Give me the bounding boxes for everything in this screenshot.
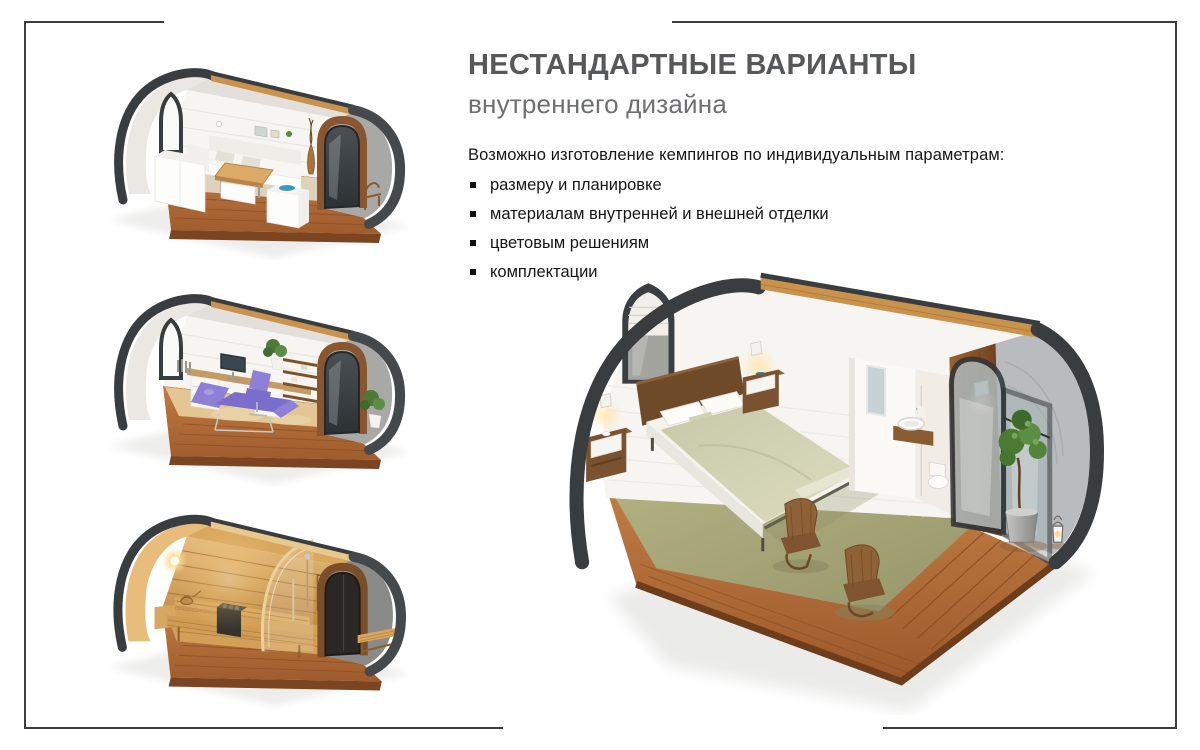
frame-bottom-left-segment bbox=[24, 727, 503, 729]
square-bullet-icon bbox=[470, 269, 476, 275]
cube-table bbox=[267, 190, 299, 228]
pod-office-image bbox=[58, 258, 420, 486]
shelf-plant bbox=[286, 131, 292, 137]
wall-picture bbox=[255, 126, 267, 137]
square-bullet-icon bbox=[470, 182, 476, 188]
pod-bedroom-image bbox=[548, 265, 1120, 715]
page-subtitle: внутреннего дизайна bbox=[468, 89, 1048, 120]
bullet-item: размеру и планировке bbox=[470, 174, 1048, 197]
intro-text: Возможно изготовление кемпингов по индив… bbox=[468, 146, 1048, 165]
bathroom bbox=[849, 358, 951, 515]
mirror bbox=[867, 366, 885, 416]
bullet-item: цветовым решениям bbox=[470, 232, 1048, 255]
pod-lounge-image bbox=[58, 32, 420, 260]
frame-top-left-segment bbox=[24, 21, 164, 23]
shower-head bbox=[304, 554, 310, 560]
towel bbox=[917, 406, 925, 418]
slide-canvas: НЕСТАНДАРТНЫЕ ВАРИАНТЫ внутреннего дизай… bbox=[0, 0, 1200, 750]
dark-doorway bbox=[325, 573, 359, 655]
blue-bowl bbox=[279, 185, 295, 191]
bullet-item: материалам внутренней и внешней отделки bbox=[470, 203, 1048, 226]
frame-top-right-segment bbox=[672, 21, 1177, 23]
square-bullet-icon bbox=[470, 240, 476, 246]
page-title: НЕСТАНДАРТНЫЕ ВАРИАНТЫ bbox=[468, 50, 1048, 80]
wall-sconce bbox=[217, 122, 222, 127]
frame-right-edge bbox=[1175, 21, 1177, 729]
round-lamp bbox=[170, 556, 179, 565]
pod-sauna-image bbox=[58, 478, 420, 710]
square-bullet-icon bbox=[470, 211, 476, 217]
wall-sconce bbox=[751, 341, 762, 355]
computer-monitor bbox=[221, 354, 245, 372]
frame-left-edge bbox=[24, 21, 26, 729]
frame-bottom-right-segment bbox=[883, 727, 1177, 729]
text-block: НЕСТАНДАРТНЫЕ ВАРИАНТЫ внутреннего дизай… bbox=[468, 50, 1048, 290]
arched-window bbox=[161, 94, 181, 152]
wall-sconce bbox=[600, 394, 611, 408]
